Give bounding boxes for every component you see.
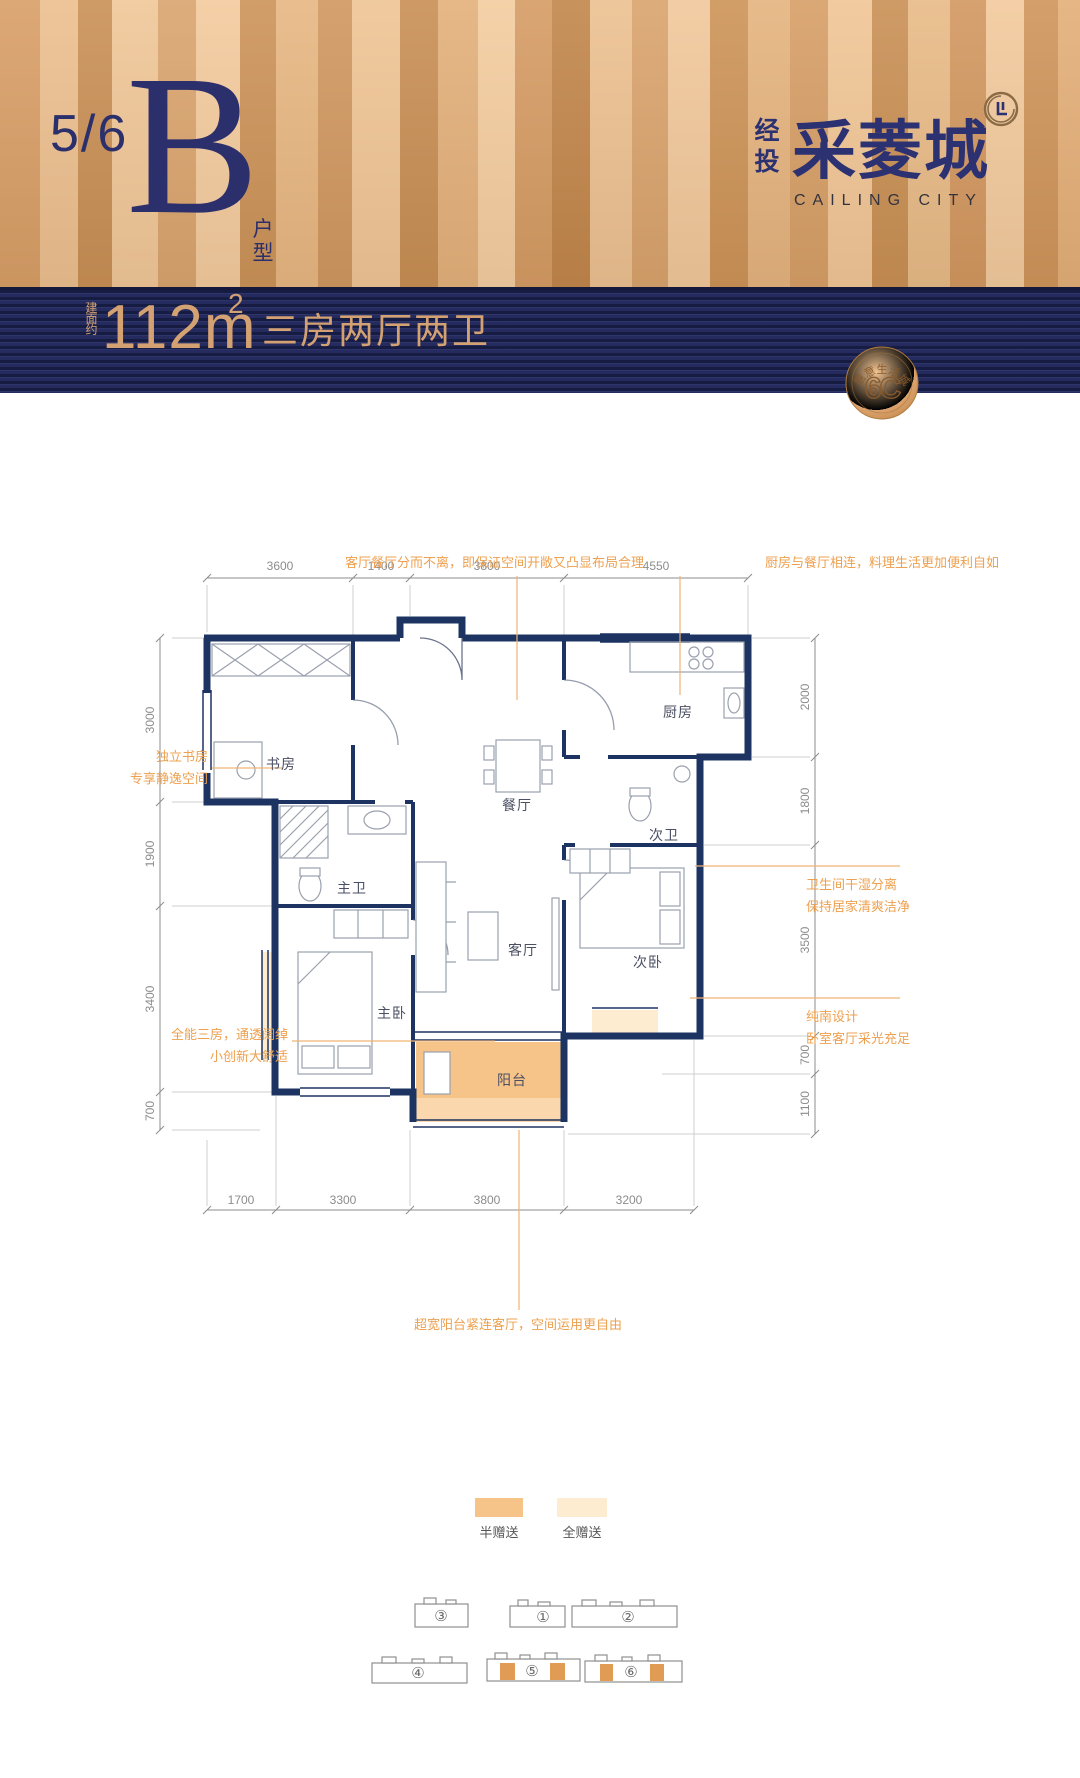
annotation-rooms: 全能三房，通透阔绰 小创新大舒适 — [148, 1024, 288, 1068]
coffee-table-icon — [468, 912, 498, 960]
annotation-kitchen: 厨房与餐厅相连，料理生活更加便利自如 — [765, 552, 999, 574]
room-label-kitchen: 厨房 — [663, 702, 693, 722]
room-label-study: 书房 — [266, 754, 296, 774]
room-label-bed1: 主卧 — [377, 1003, 407, 1023]
building-number-5: ⑤ — [525, 1662, 538, 1680]
annotation-south-line1: 纯南设计 — [806, 1006, 910, 1028]
annotation-bath-line2: 保持居家清爽洁净 — [806, 896, 910, 918]
dim-top-4: 4550 — [643, 559, 670, 573]
planter-icon — [424, 1052, 450, 1094]
dim-right-5: 1100 — [798, 1091, 812, 1117]
shower-icon — [280, 806, 328, 858]
annotation-south: 纯南设计 卧室客厅采光充足 — [806, 1006, 910, 1050]
annotation-bath-line1: 卫生间干湿分离 — [806, 874, 910, 896]
annotation-balcony: 超宽阳台紧连客厅，空间运用更自由 — [340, 1314, 696, 1336]
dim-bottom-2: 3300 — [330, 1193, 357, 1207]
annotation-study-line2: 专享静逸空间 — [68, 768, 208, 790]
dim-left-4: 700 — [143, 1101, 157, 1121]
floor-plan-canvas — [0, 0, 1080, 1778]
dim-bottom-4: 3200 — [616, 1193, 643, 1207]
dim-bottom-3: 3800 — [474, 1193, 501, 1207]
annotation-dining: 客厅餐厅分而不离，即保证空间开敞又凸显布局合理 — [345, 552, 644, 574]
annotation-rooms-line1: 全能三房，通透阔绰 — [148, 1024, 288, 1046]
legend-full-gift-label: 全赠送 — [562, 1522, 601, 1541]
building-number-3: ③ — [434, 1607, 447, 1625]
legend-swatches — [475, 1498, 607, 1517]
building-number-1: ① — [536, 1608, 549, 1626]
desk-icon — [214, 742, 262, 798]
sofa-icon — [416, 862, 456, 992]
floorplan-flyer-page: 5/6 B 户型 经投 采菱城 CAILING CITY 建面约 112m 2 … — [0, 0, 1080, 1778]
annotation-study-line1: 独立书房 — [68, 746, 208, 768]
room-label-living: 客厅 — [508, 940, 538, 960]
dim-right-3: 3500 — [798, 927, 812, 954]
dim-right-2: 1800 — [798, 788, 812, 815]
dim-left-1: 3000 — [143, 707, 157, 734]
room-label-balcony: 阳台 — [497, 1070, 527, 1090]
legend-half-gift-label: 半赠送 — [479, 1522, 518, 1541]
room-label-bath2: 次卫 — [649, 825, 679, 845]
dim-top-1: 3600 — [267, 559, 294, 573]
annotation-study: 独立书房 专享静逸空间 — [68, 746, 208, 790]
room-label-bath1: 主卫 — [337, 878, 367, 898]
room-label-bed2: 次卧 — [633, 952, 663, 972]
building-number-2: ② — [621, 1608, 634, 1626]
building-number-4: ④ — [411, 1664, 424, 1682]
dim-bottom-1: 1700 — [228, 1193, 255, 1207]
building-number-6: ⑥ — [624, 1663, 637, 1681]
dim-right-1: 2000 — [798, 684, 812, 711]
annotation-rooms-line2: 小创新大舒适 — [148, 1046, 288, 1068]
annotation-bath: 卫生间干湿分离 保持居家清爽洁净 — [806, 874, 910, 918]
room-label-dining: 餐厅 — [502, 795, 532, 815]
tv-icon — [552, 898, 559, 990]
dim-left-3: 3400 — [143, 986, 157, 1013]
dining-table-icon — [484, 740, 552, 792]
annotation-south-line2: 卧室客厅采光充足 — [806, 1028, 910, 1050]
dim-left-2: 1900 — [143, 841, 157, 868]
wardrobe-icon — [212, 644, 350, 676]
